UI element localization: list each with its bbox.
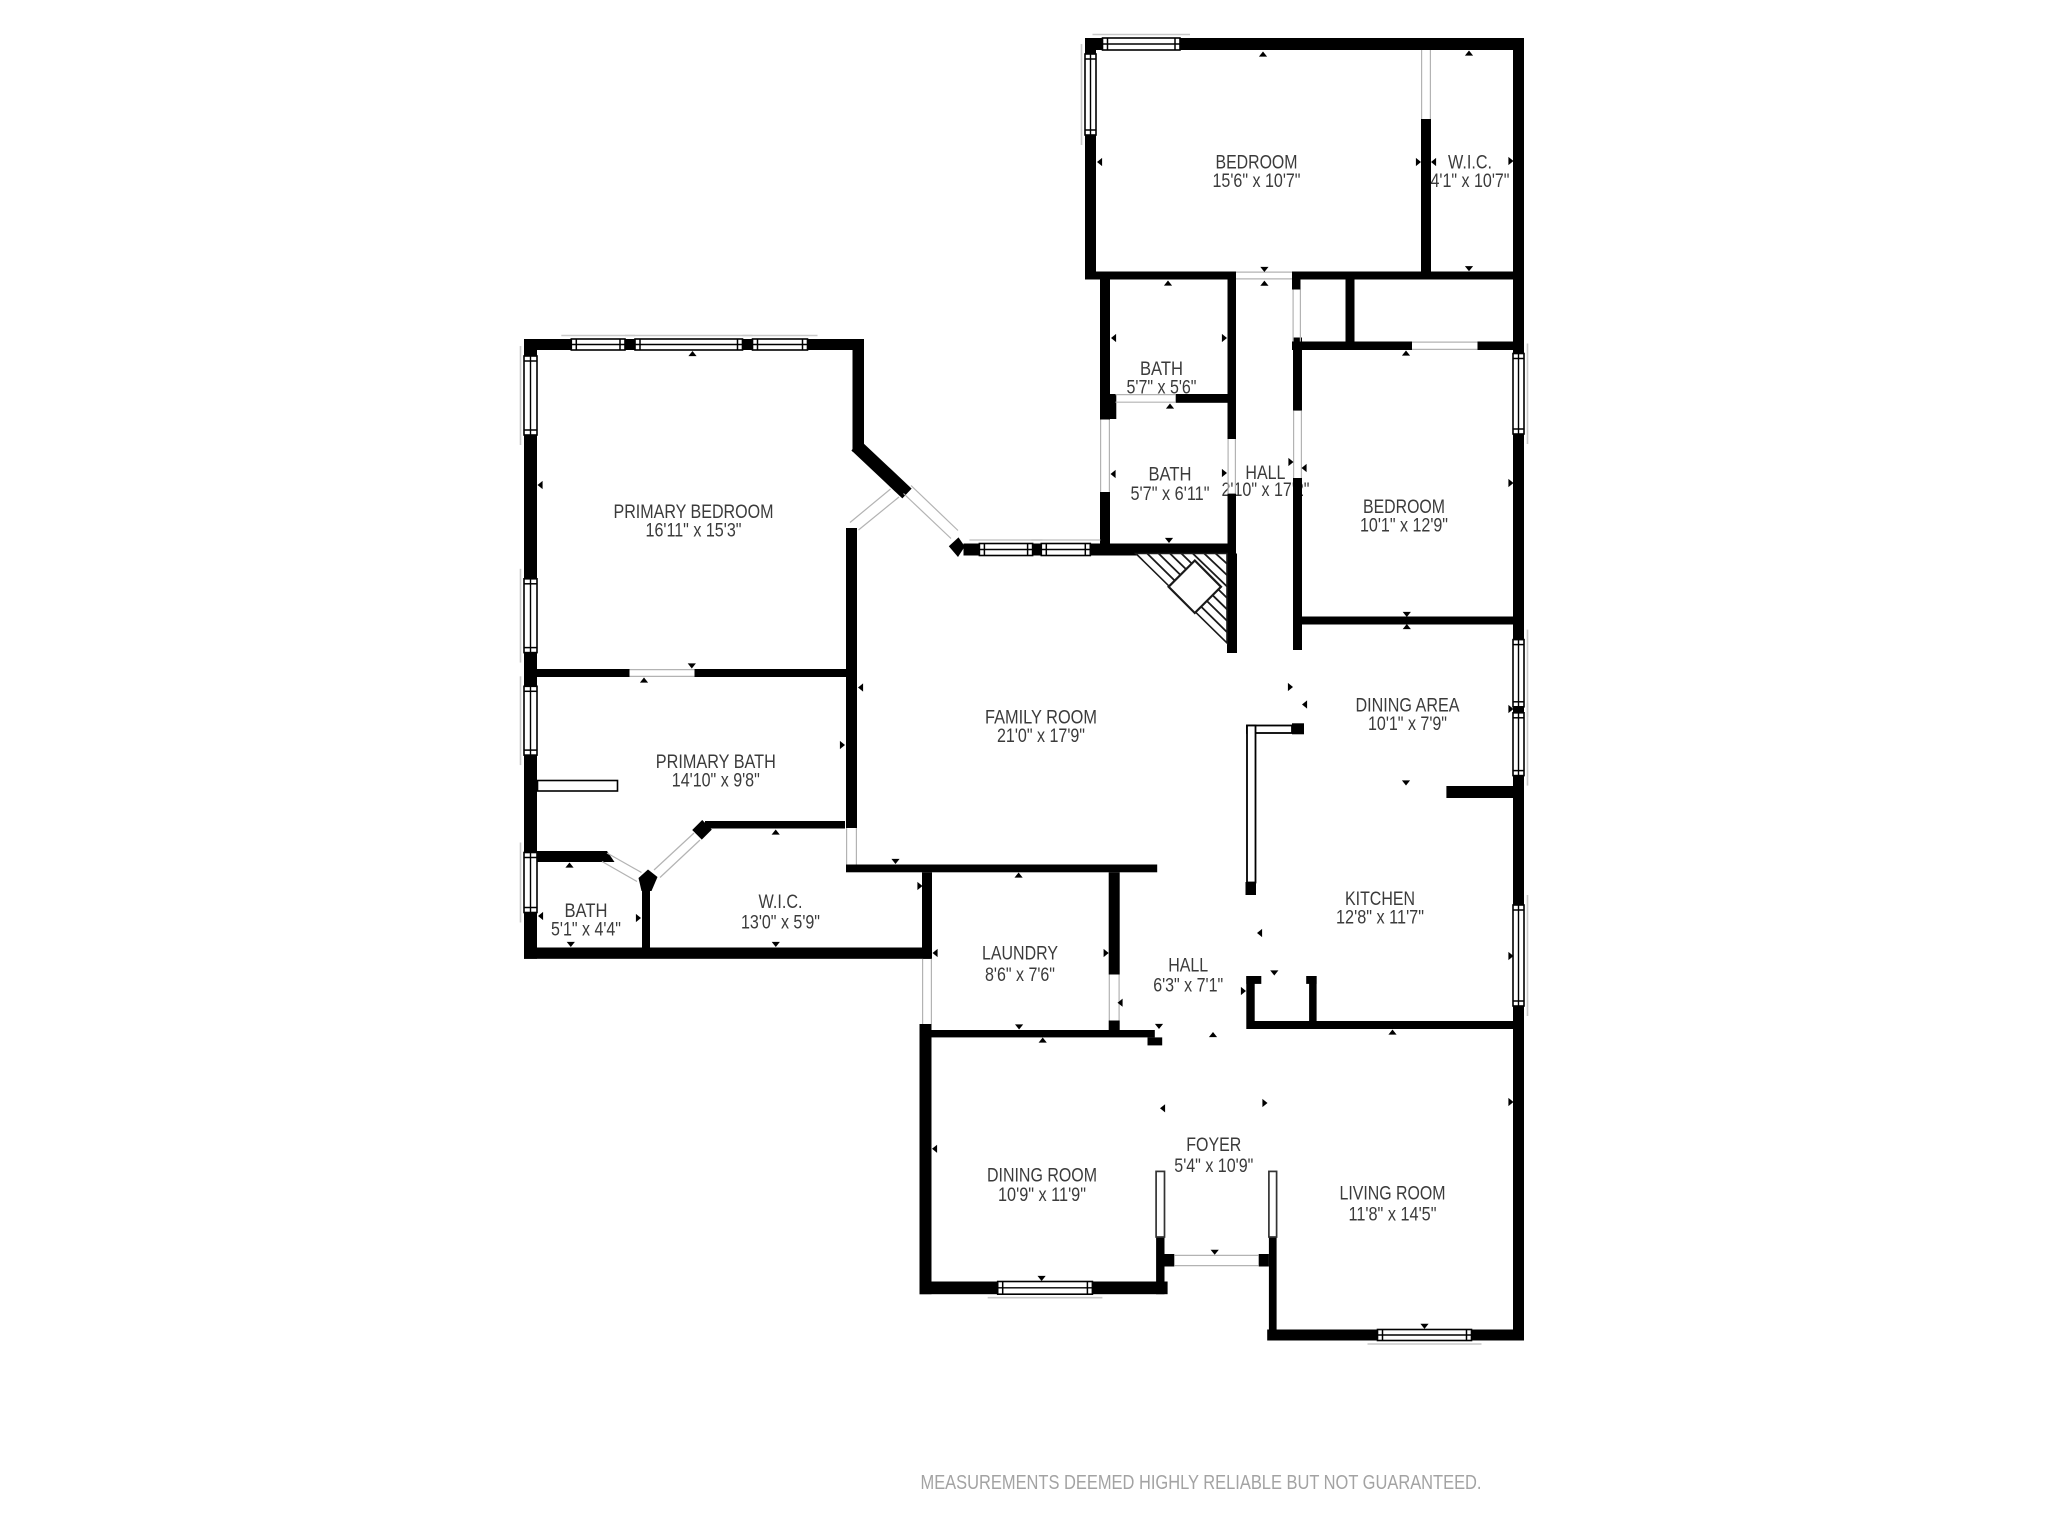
svg-text:8'6" x 7'6": 8'6" x 7'6" [985,965,1055,986]
svg-text:5'1" x 4'4": 5'1" x 4'4" [551,920,621,941]
svg-text:HALL: HALL [1168,956,1208,977]
svg-text:14'10" x 9'8": 14'10" x 9'8" [672,771,760,792]
svg-text:10'1" x 12'9": 10'1" x 12'9" [1360,516,1448,537]
svg-text:13'0" x 5'9": 13'0" x 5'9" [741,913,820,934]
svg-text:6'3" x 7'1": 6'3" x 7'1" [1153,976,1223,997]
svg-text:15'6" x 10'7": 15'6" x 10'7" [1213,171,1301,192]
svg-text:21'0" x 17'9": 21'0" x 17'9" [997,726,1085,747]
svg-text:10'9" x 11'9": 10'9" x 11'9" [998,1185,1086,1206]
svg-text:FOYER: FOYER [1186,1135,1241,1156]
svg-text:12'8" x 11'7": 12'8" x 11'7" [1336,908,1424,929]
svg-text:LAUNDRY: LAUNDRY [982,944,1058,965]
svg-text:DINING ROOM: DINING ROOM [987,1166,1097,1187]
svg-text:11'8" x 14'5": 11'8" x 14'5" [1349,1205,1437,1226]
svg-text:5'4" x 10'9": 5'4" x 10'9" [1174,1156,1253,1177]
svg-text:10'1" x 7'9": 10'1" x 7'9" [1368,714,1447,735]
svg-text:BATH: BATH [1149,465,1192,486]
svg-text:LIVING ROOM: LIVING ROOM [1340,1184,1446,1205]
svg-text:5'7" x 5'6": 5'7" x 5'6" [1127,378,1197,399]
svg-text:16'11" x 15'3": 16'11" x 15'3" [646,521,742,542]
svg-text:4'1" x 10'7": 4'1" x 10'7" [1431,171,1510,192]
svg-text:5'7" x 6'11": 5'7" x 6'11" [1131,484,1210,505]
svg-text:W.I.C.: W.I.C. [759,892,803,913]
svg-text:MEASUREMENTS DEEMED HIGHLY REL: MEASUREMENTS DEEMED HIGHLY RELIABLE BUT … [921,1471,1482,1494]
